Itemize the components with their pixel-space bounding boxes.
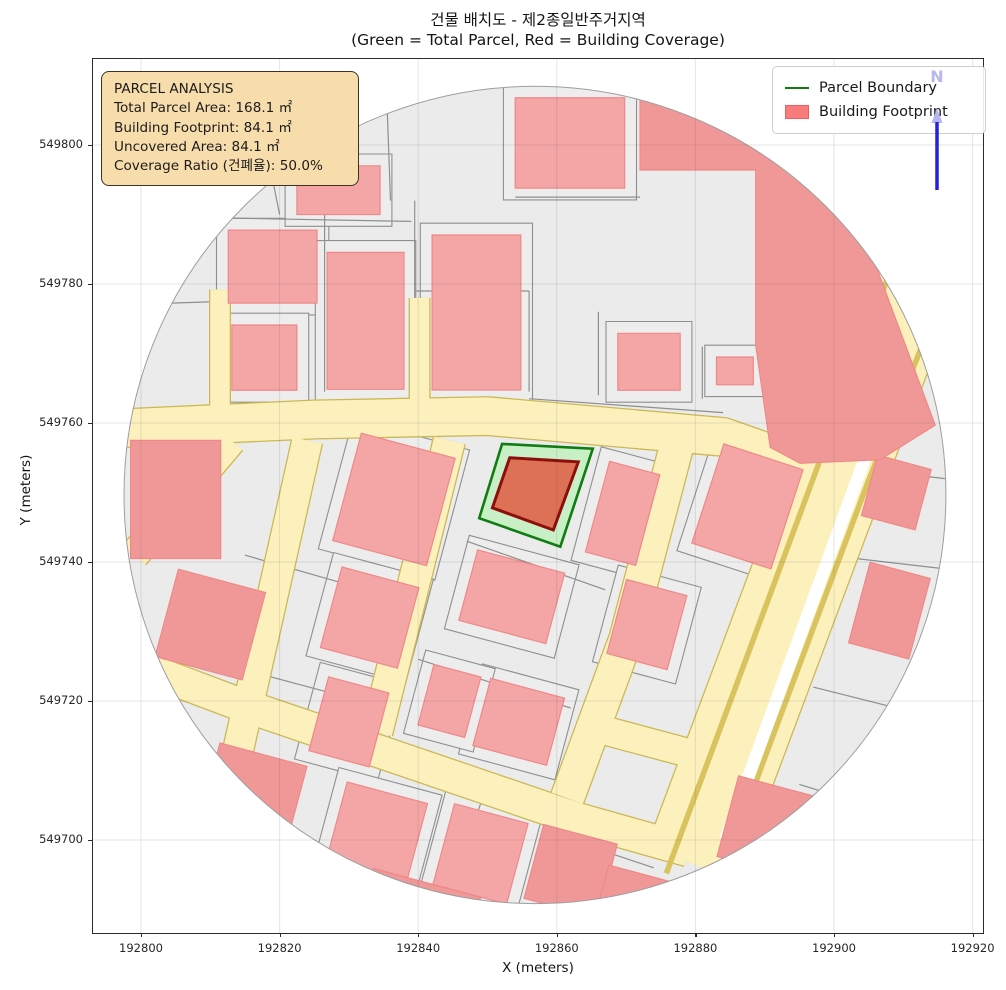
- infobox-line: Building Footprint: 84.1 ㎡: [114, 119, 346, 138]
- figure: 건물 배치도 - 제2종일반주거지역 (Green = Total Parcel…: [0, 0, 1006, 990]
- tick-mark-x: [280, 933, 281, 937]
- tick-mark-x: [557, 933, 558, 937]
- tick-label-x: 192900: [812, 941, 856, 955]
- tick-label-y: 549700: [13, 832, 83, 846]
- infobox-line: Coverage Ratio (건폐율): 50.0%: [114, 157, 346, 176]
- map-layers: [93, 86, 980, 933]
- tick-mark-x: [695, 933, 696, 937]
- tick-mark-x: [418, 933, 419, 937]
- north-label: N: [930, 67, 943, 86]
- parcel-analysis-box: PARCEL ANALYSIS Total Parcel Area: 168.1…: [101, 71, 359, 186]
- map-canvas: [93, 59, 983, 933]
- parcel-line: [799, 784, 889, 812]
- tick-label-y: 549740: [13, 554, 83, 568]
- plot-area: Parcel BoundaryBuilding Footprint N: [92, 58, 984, 934]
- tick-mark-x: [141, 933, 142, 937]
- y-axis-label: Y (meters): [18, 430, 34, 550]
- infobox-line: Total Parcel Area: 168.1 ㎡: [114, 99, 346, 118]
- infobox-title: PARCEL ANALYSIS: [114, 80, 346, 99]
- tick-label-y: 549780: [13, 276, 83, 290]
- north-arrowhead-icon: [932, 108, 943, 123]
- infobox-line: Uncovered Area: 84.1 ㎡: [114, 138, 346, 157]
- tick-mark-x: [973, 933, 974, 937]
- tick-label-x: 192820: [258, 941, 302, 955]
- building: [618, 333, 680, 390]
- building: [717, 357, 754, 385]
- building: [228, 230, 317, 303]
- chart-subtitle: (Green = Total Parcel, Red = Building Co…: [93, 31, 983, 49]
- tick-label-x: 192860: [535, 941, 579, 955]
- tick-mark-x: [834, 933, 835, 937]
- tick-label-x: 192920: [951, 941, 995, 955]
- tick-label-x: 192800: [119, 941, 163, 955]
- building: [515, 98, 625, 188]
- tick-label-y: 549760: [13, 415, 83, 429]
- building: [432, 235, 521, 390]
- tick-mark-y: [88, 284, 92, 285]
- building: [131, 440, 221, 558]
- north-arrow: N: [913, 59, 973, 199]
- legend-patch-swatch: [785, 105, 809, 119]
- tick-mark-y: [88, 145, 92, 146]
- chart-title: 건물 배치도 - 제2종일반주거지역: [93, 8, 983, 30]
- tick-label-x: 192840: [396, 941, 440, 955]
- tick-label-y: 549720: [13, 693, 83, 707]
- tick-label-y: 549800: [13, 137, 83, 151]
- x-axis-label: X (meters): [93, 960, 983, 976]
- tick-mark-y: [88, 840, 92, 841]
- tick-label-x: 192880: [673, 941, 717, 955]
- tick-mark-y: [88, 423, 92, 424]
- legend-line-swatch: [785, 87, 809, 89]
- tick-mark-y: [88, 562, 92, 563]
- building: [327, 252, 404, 389]
- tick-mark-y: [88, 701, 92, 702]
- building: [232, 325, 297, 390]
